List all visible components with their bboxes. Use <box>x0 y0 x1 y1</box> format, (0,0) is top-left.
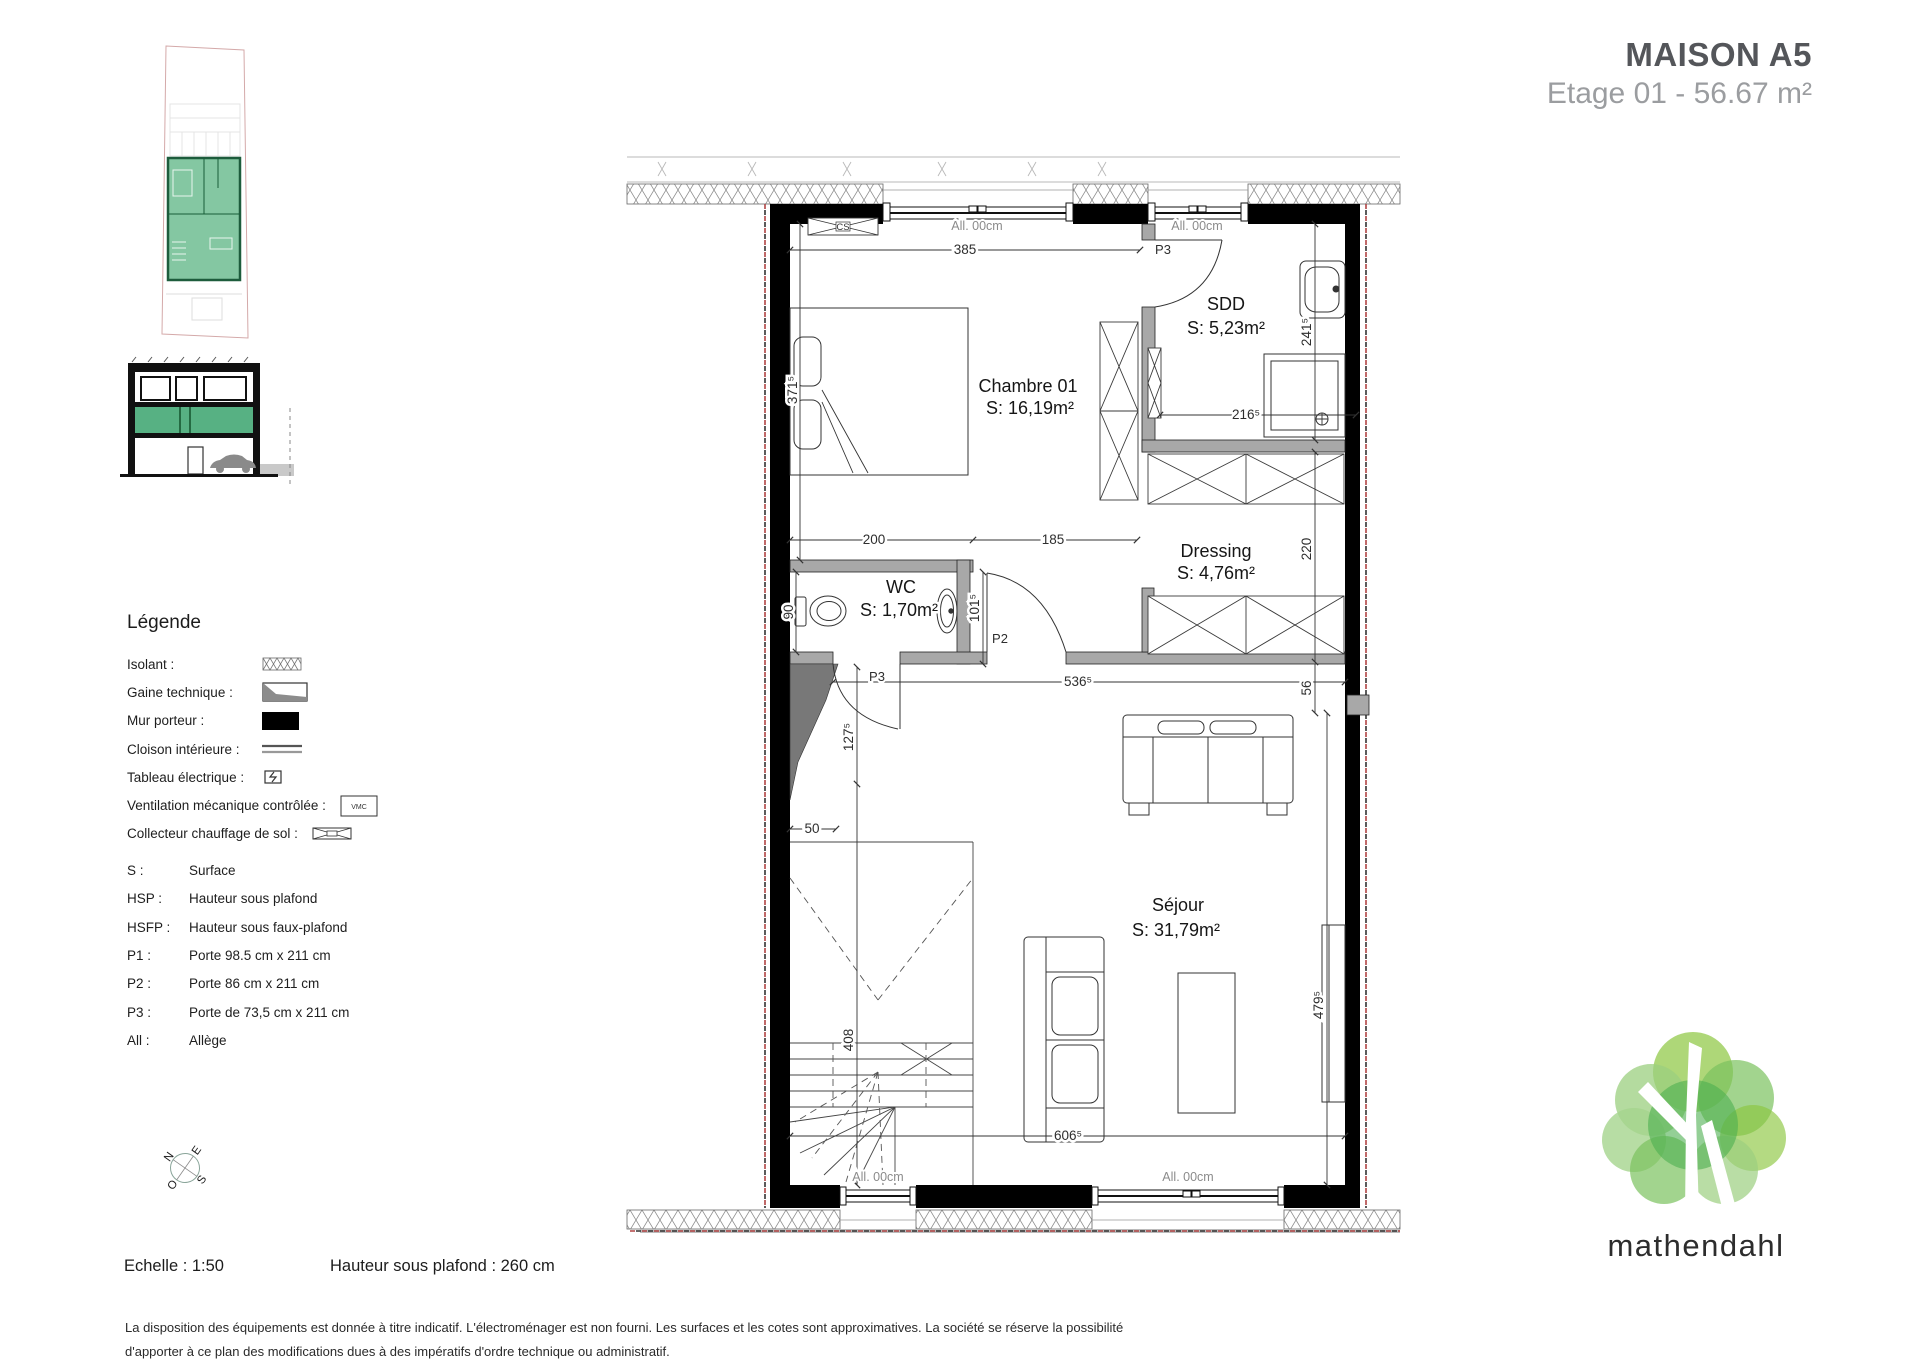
mathendahl-logo-icon <box>1596 1020 1791 1215</box>
room-wc-name: WC <box>886 577 916 597</box>
compass-n: N <box>162 1150 177 1164</box>
window-bottom-left <box>840 1185 916 1220</box>
legend-row-isolant: Isolant : <box>127 650 467 678</box>
room-dressing-name: Dressing <box>1180 541 1251 561</box>
wc-basin <box>937 589 957 633</box>
room-wc-surface: S: 1,70m² <box>860 600 938 620</box>
dim-185: 185 <box>1042 532 1065 547</box>
dim-479: 479⁵ <box>1311 991 1326 1019</box>
section-thumbnail <box>120 356 300 488</box>
insulation-swatch-icon <box>262 656 302 672</box>
toilet <box>795 596 846 626</box>
dim-371: 371⁵ <box>785 376 800 404</box>
door-label-p2: P2 <box>992 631 1008 646</box>
legend-row-gaine: Gaine technique : <box>127 678 467 706</box>
sill-label-top-left: All. 00cm <box>951 219 1002 233</box>
page-title: MAISON A5 <box>1547 36 1812 74</box>
floor-plan: CS <box>620 140 1420 1250</box>
room-sejour-name: Séjour <box>1152 895 1204 915</box>
door-label-sdd: P3 <box>1155 242 1171 257</box>
ceiling-height-note: Hauteur sous plafond : 260 cm <box>330 1257 555 1276</box>
dim-606: 606⁵ <box>1054 1128 1082 1143</box>
scale-note: Echelle : 1:50 <box>124 1257 224 1276</box>
dim-241: 241⁵ <box>1299 318 1314 346</box>
dim-200: 200 <box>863 532 886 547</box>
bed <box>790 308 968 475</box>
legend-row-mur: Mur porteur : <box>127 707 467 735</box>
abbrev-row: HSFP : Hauteur sous faux-plafond <box>127 913 467 941</box>
svg-text:VMC: VMC <box>351 804 367 811</box>
sill-label-bottom-right: All. 00cm <box>1162 1170 1213 1184</box>
compass-o: O <box>165 1178 180 1192</box>
legend: Légende Isolant : Gaine technique : Mur … <box>127 612 467 1055</box>
room-sdd-name: SDD <box>1207 294 1245 314</box>
dim-56: 56 <box>1299 680 1314 695</box>
page-subtitle: Etage 01 - 56.67 m² <box>1547 77 1812 111</box>
dim-536: 536⁵ <box>1064 674 1092 689</box>
room-dressing-surface: S: 4,76m² <box>1177 563 1255 583</box>
dim-216: 216⁵ <box>1232 407 1260 422</box>
room-chambre-name: Chambre 01 <box>978 376 1077 396</box>
highlighted-floor <box>135 407 253 433</box>
dim-408: 408 <box>841 1029 856 1052</box>
legend-row-collecteur: Collecteur chauffage de sol : <box>127 820 467 848</box>
window-bottom-right <box>1092 1185 1284 1220</box>
room-sdd-surface: S: 5,23m² <box>1187 318 1265 338</box>
mathendahl-wordmark: mathendahl <box>1586 1228 1806 1264</box>
dim-50: 50 <box>804 821 819 836</box>
coffee-table <box>1178 973 1235 1113</box>
exterior-reference-lines <box>627 157 1400 182</box>
room-chambre-surface: S: 16,19m² <box>986 398 1074 418</box>
abbrev-row: P2 : Porte 86 cm x 211 cm <box>127 970 467 998</box>
abbrev-row: HSP : Hauteur sous plafond <box>127 884 467 912</box>
site-plan-thumbnail <box>152 42 252 342</box>
sill-label-top-right: All. 00cm <box>1171 219 1222 233</box>
room-sejour-surface: S: 31,79m² <box>1132 920 1220 940</box>
sofa-left <box>1024 937 1104 1142</box>
legend-row-vmc: Ventilation mécanique contrôlée : VMC <box>127 791 467 819</box>
compass-s: S <box>195 1173 209 1186</box>
abbrev-row: S : Surface <box>127 856 467 884</box>
floor-heating-collector: CS <box>808 218 878 235</box>
abbrev-row: P3 : Porte de 73,5 cm x 211 cm <box>127 998 467 1026</box>
washbasin <box>1300 261 1345 318</box>
floor-heating-collector-swatch-icon <box>312 827 352 840</box>
cs-label: CS <box>836 222 849 233</box>
door-label-wc: P3 <box>869 669 885 684</box>
disclaimer-line-1: La disposition des équipements est donné… <box>125 1316 1123 1340</box>
insulation-bands <box>627 184 1400 1229</box>
dim-90: 90 <box>781 604 796 619</box>
dim-101: 101⁵ <box>967 594 982 622</box>
legend-row-tableau: Tableau électrique : <box>127 763 467 791</box>
compass: N E S O <box>156 1139 214 1197</box>
partition-swatch-icon <box>262 743 302 755</box>
sofa-top <box>1123 715 1293 815</box>
car-silhouette <box>210 455 256 474</box>
sill-label-bottom-left: All. 00cm <box>852 1170 903 1184</box>
shower <box>1264 354 1345 437</box>
dim-127: 127⁵ <box>841 723 856 751</box>
technical-duct-swatch-icon <box>262 682 308 702</box>
load-bearing-wall-swatch-icon <box>262 711 300 731</box>
electrical-panel-swatch-icon <box>262 769 284 785</box>
technical-duct <box>790 664 838 800</box>
door-wc <box>833 664 900 729</box>
plan-header: MAISON A5 Etage 01 - 56.67 m² <box>1547 36 1812 111</box>
legend-abbreviations: S : Surface HSP : Hauteur sous plafond H… <box>127 856 467 1055</box>
disclaimer-line-2: d'apporter à ce plan des modifications d… <box>125 1340 1123 1364</box>
dim-220: 220 <box>1299 538 1314 561</box>
staircase <box>790 842 973 1185</box>
dim-385: 385 <box>954 242 977 257</box>
legend-heading: Légende <box>127 612 467 634</box>
abbrev-row: All : Allège <box>127 1026 467 1054</box>
legend-row-cloison: Cloison intérieure : <box>127 735 467 763</box>
vmc-swatch-icon: VMC <box>340 794 378 818</box>
abbrev-row: P1 : Porte 98.5 cm x 211 cm <box>127 941 467 969</box>
